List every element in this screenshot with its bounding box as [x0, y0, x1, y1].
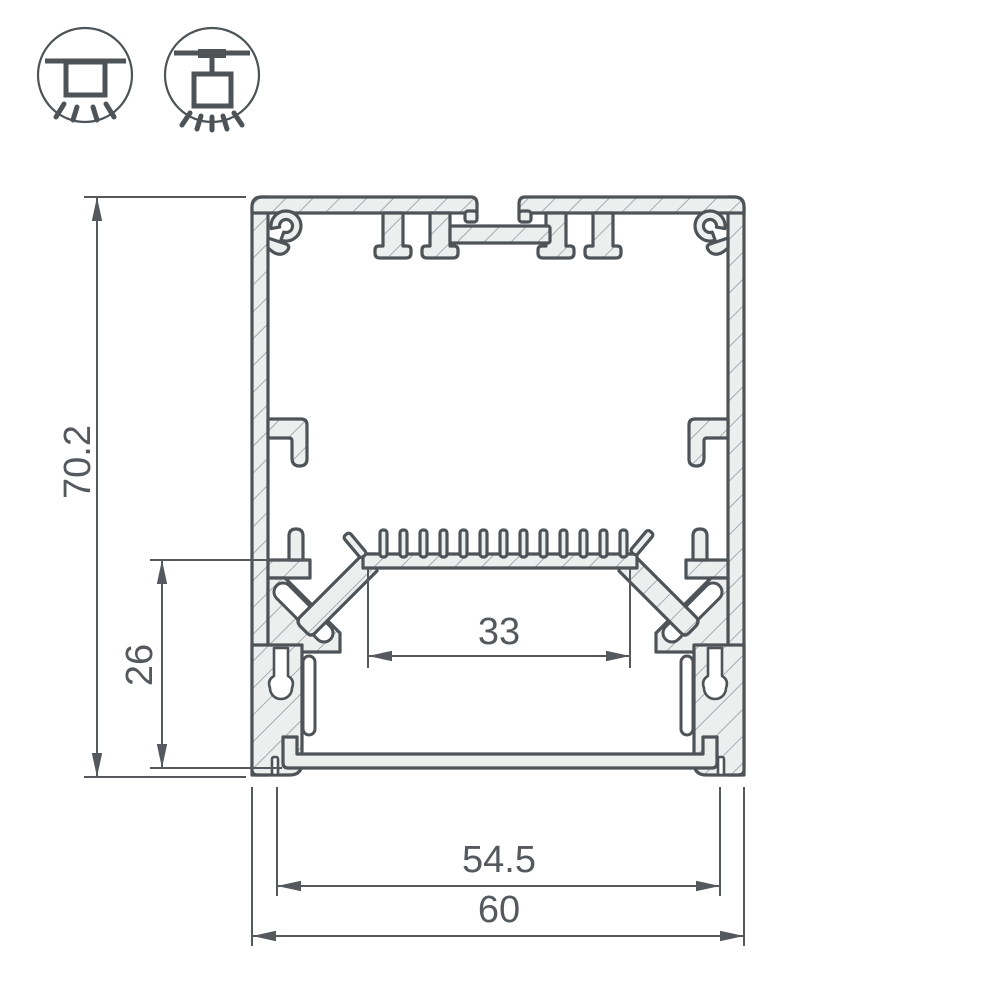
foot-slit [272, 757, 278, 775]
mounting-icons [38, 28, 259, 130]
dimension-label: 26 [119, 644, 161, 686]
clip-tab [289, 529, 303, 560]
dimension-label: 60 [478, 889, 520, 931]
dimension-label: 33 [478, 611, 520, 653]
canopy [198, 49, 226, 58]
diffuser-tray [283, 737, 717, 768]
ledge [268, 560, 310, 578]
dimension-led-shelf-width: 33 [368, 568, 630, 668]
profile-left-half [252, 197, 477, 775]
gap-lip [465, 211, 477, 222]
surface-mount-icon [38, 28, 132, 122]
drawing-page: 70.2 26 33 54.5 60 [0, 0, 1000, 1000]
mid-wall-hook [268, 419, 307, 466]
dimension-label: 54.5 [462, 839, 536, 881]
dimension-overall-height: 70.2 [57, 197, 246, 777]
profile-right-half [519, 197, 744, 775]
dimension-diffuser-width: 54.5 [277, 787, 720, 896]
pendant-mount-icon [165, 28, 259, 130]
suspension-bridge [450, 226, 550, 243]
light-rays [182, 113, 242, 130]
dimension-label: 70.2 [57, 425, 99, 499]
corner-screw-boss [271, 211, 301, 241]
profile-cross-section [252, 197, 744, 775]
icon-circle [38, 28, 132, 122]
t-slot-rib [375, 213, 411, 258]
technical-drawing: 70.2 26 33 54.5 60 [0, 0, 1000, 1000]
